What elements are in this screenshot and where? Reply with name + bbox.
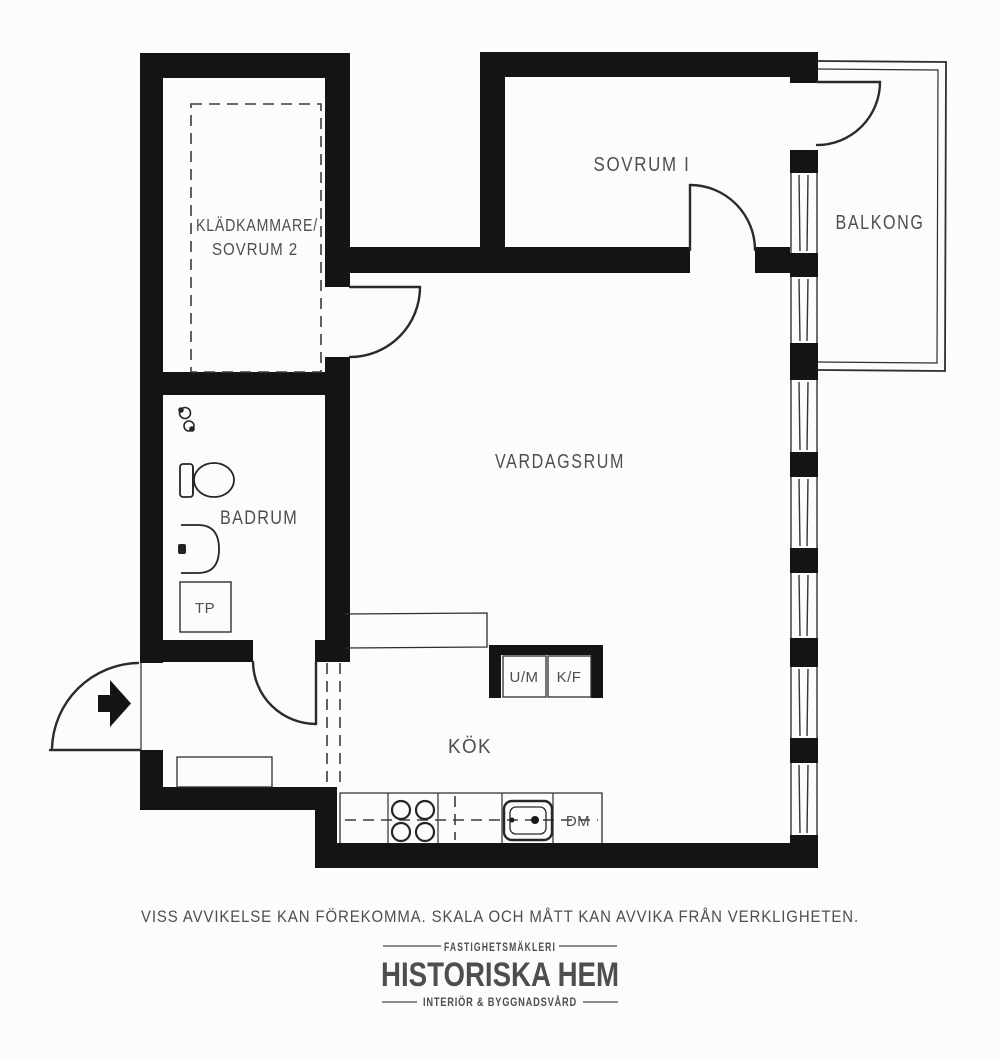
room-label-sovrum1: SOVRUM I [594, 154, 691, 176]
wall-pier [790, 343, 818, 380]
wall-segment [140, 372, 350, 395]
disclaimer-text: VISS AVVIKELSE KAN FÖREKOMMA. SKALA OCH … [141, 907, 859, 926]
bedroom-door [690, 185, 755, 250]
room-label-vardagsrum: VARDAGSRUM [495, 451, 625, 473]
wall-segment [140, 640, 253, 662]
appliance-tower: U/M K/F [489, 645, 603, 698]
wall-pier [790, 150, 818, 173]
kf-label: K/F [557, 669, 582, 686]
wall-segment [325, 247, 690, 273]
brand-logo: FASTIGHETSMÄKLERI HISTORISKA HEM INTERIÖ… [381, 941, 619, 1009]
brand-tagline: INTERIÖR & BYGGNADSVÅRD [423, 994, 577, 1009]
floor-plan-canvas: U/M K/F DM [0, 0, 1000, 1061]
bathroom-sink-icon [178, 525, 219, 573]
window [791, 173, 817, 253]
wall-segment [315, 640, 350, 662]
room-label-kok: KÖK [448, 736, 492, 758]
wall-pier [790, 253, 818, 277]
toilet-icon [180, 463, 234, 497]
balcony-door [817, 82, 880, 145]
window [791, 380, 817, 452]
wall-pier [790, 548, 818, 573]
closet-room-door [350, 287, 420, 357]
tp-unit: TP [180, 582, 231, 632]
window [791, 763, 817, 835]
dashed-openings [191, 104, 340, 787]
window [791, 277, 817, 343]
wall-segment [480, 52, 505, 273]
entry-arrow-icon [98, 680, 131, 727]
window [791, 477, 817, 548]
faucet-icon [179, 408, 194, 432]
room-label-kladkammare-line1: KLÄDKAMMARE/ [196, 215, 318, 235]
room-label-kladkammare-line2: SOVRUM 2 [212, 239, 298, 259]
room-label-balkong: BALKONG [836, 212, 925, 234]
brand-category: FASTIGHETSMÄKLERI [444, 941, 556, 954]
kitchen-fixtures: U/M K/F DM [340, 613, 603, 843]
closet-area-dashed [191, 104, 321, 372]
stove-icon [392, 801, 434, 841]
wall-pier [790, 638, 818, 667]
dm-label: DM [566, 813, 590, 830]
window [791, 573, 817, 638]
bathroom-door [253, 662, 316, 724]
window [791, 667, 817, 738]
wall-segment [315, 843, 818, 868]
wall-segment [480, 52, 818, 77]
footer: VISS AVVIKELSE KAN FÖREKOMMA. SKALA OCH … [141, 907, 859, 1009]
wall-segment [325, 357, 350, 662]
wall-segment [755, 247, 790, 273]
wall-pier [790, 835, 818, 868]
hall-closet [177, 757, 272, 787]
wall-pier [790, 52, 818, 83]
hallway [98, 680, 272, 787]
wall-pier [790, 738, 818, 763]
brand-name: HISTORISKA HEM [381, 956, 619, 994]
wall-pier [790, 452, 818, 477]
room-label-badrum: BADRUM [220, 508, 298, 529]
wall-segment [140, 53, 350, 78]
wall-segment [140, 787, 337, 810]
wall-segment [140, 53, 163, 663]
um-label: U/M [510, 669, 539, 686]
tp-label: TP [195, 600, 215, 617]
kitchen-counter: DM [340, 793, 602, 843]
floor-plan-page: U/M K/F DM [0, 0, 1000, 1061]
kitchen-bench [345, 613, 487, 648]
